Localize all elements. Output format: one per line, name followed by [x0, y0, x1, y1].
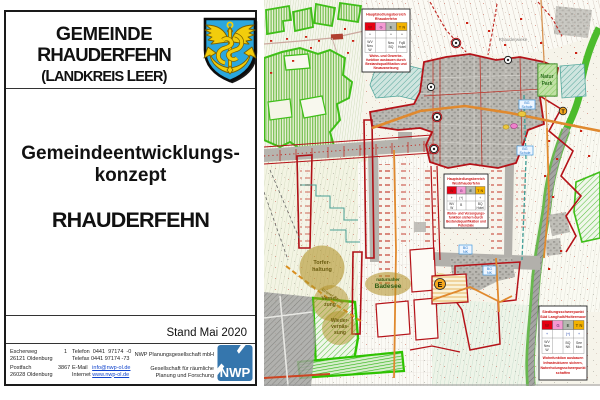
svg-text:Infrastrukturen sichern,: Infrastrukturen sichern,: [543, 361, 582, 365]
svg-text:Mon: Mon: [576, 345, 583, 349]
svg-text:+: +: [546, 332, 548, 336]
svg-text:E: E: [438, 282, 443, 289]
svg-text:E: E: [567, 323, 570, 328]
svg-text:Hauptsiedlungsbereich: Hauptsiedlungsbereich: [366, 13, 406, 17]
svg-text:+: +: [578, 332, 580, 336]
svg-text:NK: NK: [463, 250, 469, 254]
svg-text:Wohnfunktion ausbauen: Wohnfunktion ausbauen: [543, 356, 584, 360]
svg-text:T N: T N: [576, 323, 583, 328]
svg-text:W: W: [450, 189, 454, 193]
svg-text:B: B: [460, 203, 462, 207]
svg-text:E: E: [390, 25, 393, 30]
svg-text:zung: zung: [324, 302, 336, 308]
svg-text:Westrhauderfehn: Westrhauderfehn: [452, 181, 480, 185]
svg-text:NK: NK: [487, 271, 493, 275]
svg-text:naturnaher: naturnaher: [376, 277, 400, 282]
svg-text:Süd Langholt/Holtermoor: Süd Langholt/Holtermoor: [540, 315, 586, 319]
svg-text:Siedlungsschwerpunkt: Siedlungsschwerpunkt: [542, 310, 584, 314]
svg-text:Rhauderfehn: Rhauderfehn: [375, 17, 397, 21]
svg-text:schaffen: schaffen: [556, 371, 570, 375]
svg-text:G: G: [556, 323, 559, 328]
svg-text:Hauptsiedlungsbereich: Hauptsiedlungsbereich: [447, 177, 485, 181]
svg-text:W: W: [368, 25, 372, 30]
svg-text:BQ: BQ: [389, 45, 394, 49]
svg-text:G: G: [460, 189, 463, 193]
svg-text:Neuausweisung: Neuausweisung: [373, 66, 398, 70]
svg-text:(+): (+): [566, 332, 571, 336]
svg-text:E: E: [469, 189, 472, 193]
svg-text:+: +: [401, 33, 403, 37]
svg-text:Torfer-: Torfer-: [313, 260, 330, 266]
svg-text:T N: T N: [477, 189, 483, 193]
svg-text:Natur: Natur: [540, 74, 553, 80]
svg-text:+: +: [479, 196, 481, 200]
svg-text:W: W: [545, 323, 549, 328]
svg-text:Hotel: Hotel: [398, 45, 406, 49]
svg-text:Rhauderwieke: Rhauderwieke: [499, 37, 528, 42]
svg-text:haltung: haltung: [312, 267, 332, 273]
svg-text:T N: T N: [399, 25, 406, 30]
svg-text:+: +: [451, 196, 453, 200]
svg-text:G: G: [379, 25, 382, 30]
svg-text:(+): (+): [459, 196, 463, 200]
svg-text:W: W: [450, 206, 453, 210]
svg-text:sung: sung: [334, 330, 346, 336]
svg-text:NWP: NWP: [220, 365, 251, 380]
svg-text:Schule: Schule: [522, 105, 533, 109]
svg-text:NK: NK: [566, 345, 571, 349]
svg-text:Schule: Schule: [520, 151, 531, 155]
svg-text:Park: Park: [542, 81, 553, 87]
svg-text:+: +: [390, 33, 392, 37]
svg-text:Badesee: Badesee: [375, 283, 402, 290]
svg-text:+: +: [369, 33, 371, 37]
svg-text:Naherholungsschwerpunkt: Naherholungsschwerpunkt: [540, 366, 586, 370]
svg-text:Hotel: Hotel: [476, 206, 484, 210]
svg-text:Potenziale: Potenziale: [458, 224, 474, 228]
